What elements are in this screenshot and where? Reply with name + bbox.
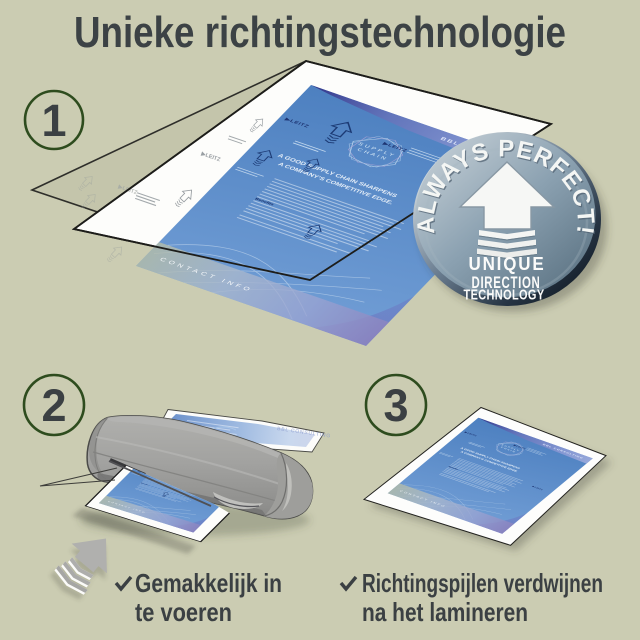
svg-text:Unieke richtingstechnologie: Unieke richtingstechnologie [74, 8, 566, 57]
svg-text:TECHNOLOGY: TECHNOLOGY [464, 288, 545, 304]
svg-text:Gemakkelijk in: Gemakkelijk in [135, 568, 282, 598]
svg-text:1: 1 [41, 95, 66, 146]
svg-text:UNIQUE: UNIQUE [469, 253, 546, 274]
svg-text:3: 3 [383, 380, 408, 431]
svg-text:2: 2 [41, 380, 66, 431]
svg-text:na het lamineren: na het lamineren [362, 597, 528, 627]
svg-text:Richtingspijlen verdwijnen: Richtingspijlen verdwijnen [362, 568, 603, 598]
svg-text:te voeren: te voeren [135, 597, 232, 627]
